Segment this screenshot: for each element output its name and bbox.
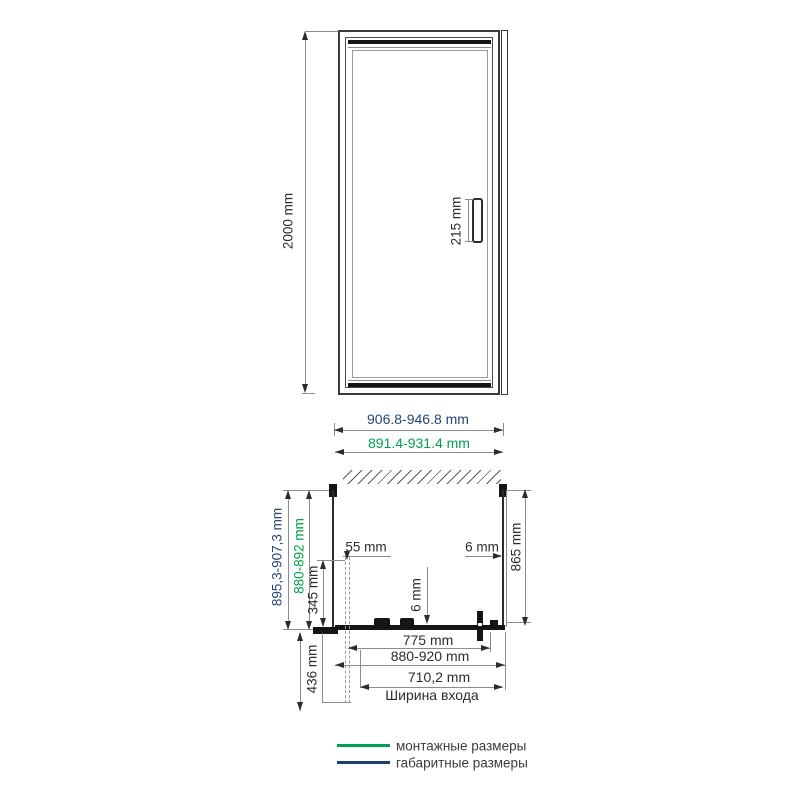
bottom-rail <box>348 383 491 387</box>
entrance-width-caption: Ширина входа <box>385 687 478 703</box>
extension-line <box>322 702 351 703</box>
dim-arrow-left <box>360 684 369 690</box>
handle-dim-label: 215 mm <box>449 197 464 246</box>
dim-arrow-right <box>481 645 490 651</box>
dim-arrow-down <box>522 617 528 626</box>
dim-tick <box>503 423 504 436</box>
door-handle-front <box>472 198 483 243</box>
extension-line <box>360 650 361 687</box>
dim-arrow-left <box>335 449 344 455</box>
leader-arrow <box>344 551 350 560</box>
dim-arrow-down <box>306 621 312 630</box>
handle-dim-tick <box>465 241 472 242</box>
side-wall-right <box>502 490 504 627</box>
drawing-canvas: 2000 mm 215 mm 906.8-946.8 mm 891.4-931.… <box>0 0 800 800</box>
bottom-rail-line <box>348 380 491 381</box>
front-height-label: 2000 mm <box>281 193 296 249</box>
extension-line <box>505 632 506 690</box>
overall-width-label: 906.8-946.8 mm <box>367 411 469 427</box>
dim-arrow-left <box>335 662 344 668</box>
dim-arrow-up <box>306 490 312 499</box>
leader-line <box>427 567 428 622</box>
dimension-line <box>334 430 503 431</box>
dim-arrow-right <box>494 449 503 455</box>
dim-arrow-left <box>334 427 343 433</box>
door-handle-plan <box>477 611 483 641</box>
legend-mounting-label: монтажные размеры <box>396 739 526 754</box>
dimension-line <box>323 562 324 626</box>
dim-880-920-label: 880-920 mm <box>391 648 470 664</box>
dim-arrow-right <box>494 427 503 433</box>
dim-436-label: 436 mm <box>305 645 320 694</box>
entrance-width-value: 710,2 mm <box>408 669 470 685</box>
dimension-line <box>300 633 301 711</box>
overall-depth-label: 895,3-907,3 mm <box>270 508 285 606</box>
dim-55-label: 55 mm <box>345 540 386 555</box>
dim-arrow-up <box>522 489 528 498</box>
dim-345-label: 345 mm <box>306 566 321 615</box>
handle-dim-line <box>468 200 469 241</box>
door-roller <box>400 618 414 625</box>
handle-notch <box>478 623 482 626</box>
leader-line <box>343 556 391 557</box>
wall-profile-strip <box>501 30 508 395</box>
door-end-bracket <box>490 620 498 627</box>
dim-arrow-down <box>297 702 303 711</box>
dimension-line <box>335 452 503 453</box>
depth-865-label: 865 mm <box>509 523 524 572</box>
dim-775-label: 775 mm <box>403 632 454 648</box>
dim-arrow-right <box>494 684 503 690</box>
mounting-width-label: 891.4-931.4 mm <box>368 435 470 451</box>
door-roller <box>374 618 390 625</box>
handle-dim-tick <box>465 199 472 200</box>
dim-arrow-up <box>302 31 308 40</box>
dashed-door-position <box>349 557 350 703</box>
leader-arrow <box>424 615 430 624</box>
top-rail <box>348 40 491 44</box>
wall-hatch <box>343 470 501 484</box>
dimension-line <box>305 33 306 391</box>
dim-arrow-up <box>285 490 291 499</box>
side-wall-right-inner <box>506 490 507 627</box>
extension-line <box>302 393 315 394</box>
legend-mounting-swatch <box>337 744 390 747</box>
bottom-left-profile <box>313 627 338 634</box>
legend-overall-label: габаритные размеры <box>396 756 528 771</box>
mounting-depth-label: 880-892 mm <box>292 518 307 594</box>
leader-arrow <box>493 553 502 559</box>
dim-arrow-down <box>285 621 291 630</box>
dashed-door-position <box>345 557 346 703</box>
extension-line <box>322 633 323 703</box>
dim-arrow-up <box>320 560 326 569</box>
dim-arrow-down <box>302 384 308 393</box>
extension-line <box>490 632 491 652</box>
dim-arrow-right <box>496 662 505 668</box>
top-rail-line <box>348 47 491 48</box>
legend-overall-swatch <box>337 761 390 764</box>
dim-arrow-left <box>348 645 357 651</box>
glass-6-label: 6 mm <box>409 578 424 612</box>
dim-arrow-up <box>297 632 303 641</box>
dim-arrow-down <box>320 618 326 627</box>
extension-line <box>305 31 338 32</box>
dimension-line <box>525 492 526 623</box>
dimension-line <box>288 492 289 628</box>
